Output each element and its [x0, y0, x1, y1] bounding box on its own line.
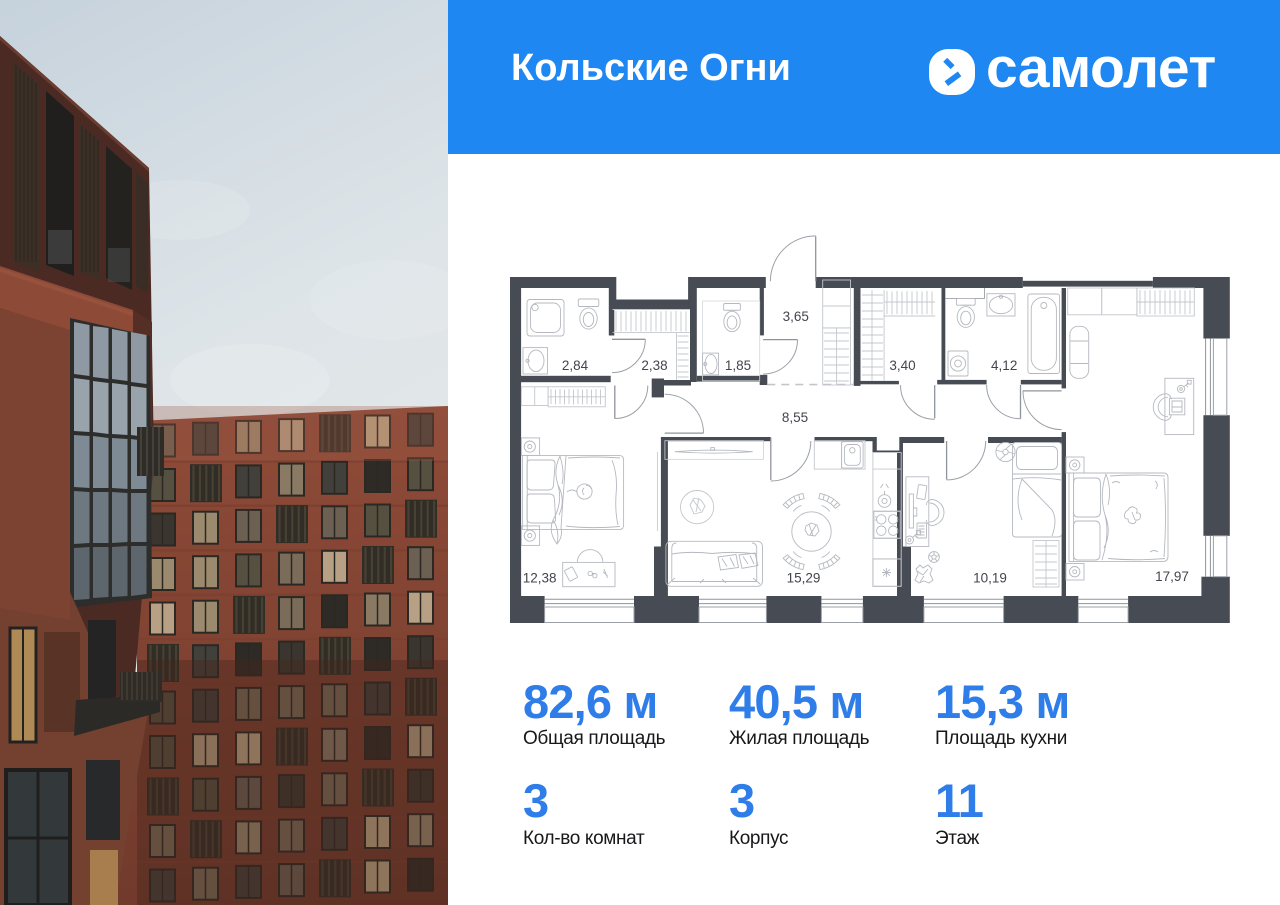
svg-text:8,55: 8,55	[782, 410, 808, 425]
svg-text:10,19: 10,19	[973, 571, 1007, 586]
svg-text:2,84: 2,84	[562, 358, 589, 373]
svg-text:3,65: 3,65	[783, 309, 809, 324]
svg-text:15,29: 15,29	[787, 571, 821, 586]
svg-text:2,38: 2,38	[641, 358, 667, 373]
svg-text:3,40: 3,40	[889, 358, 915, 373]
svg-text:12,38: 12,38	[523, 571, 557, 586]
svg-text:1,85: 1,85	[725, 358, 751, 373]
svg-text:4,12: 4,12	[991, 358, 1017, 373]
svg-text:17,97: 17,97	[1155, 569, 1189, 584]
